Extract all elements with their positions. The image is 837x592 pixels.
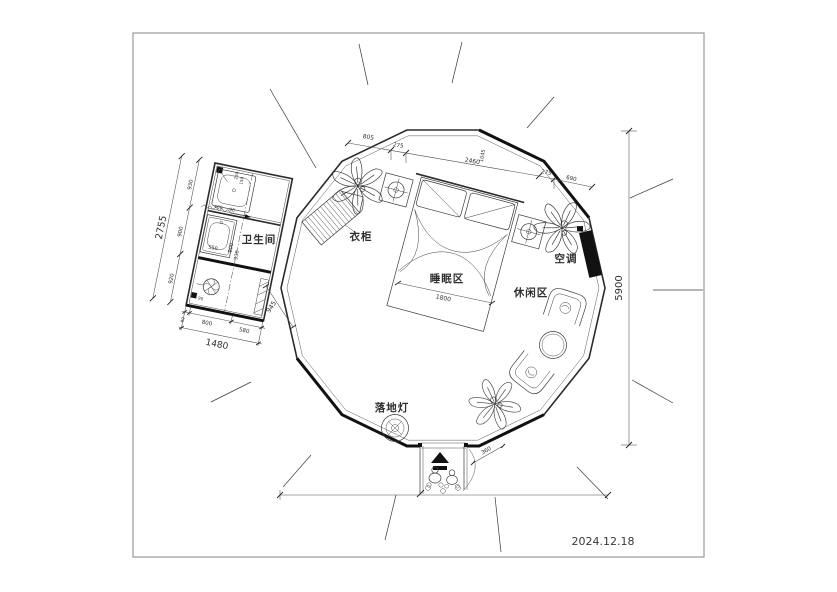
floorplan-drawing: 550 900 930 400 90 250 150 90 800 580 90… [0, 0, 837, 592]
label-sleeping-area: 睡眠区 [430, 272, 465, 285]
label-floor-lamp: 落地灯 [375, 401, 410, 414]
label-bathroom: 卫生间 [242, 233, 277, 246]
drawing-date: 2024.12.18 [572, 535, 635, 548]
floorplan-page: 550 900 930 400 90 250 150 90 800 580 90… [0, 0, 837, 592]
label-air-conditioner: 空调 [555, 252, 578, 265]
dim-5900: 5900 [614, 275, 625, 300]
label-leisure-area: 休闲区 [513, 286, 549, 299]
label-wardrobe: 衣柜 [350, 230, 373, 243]
